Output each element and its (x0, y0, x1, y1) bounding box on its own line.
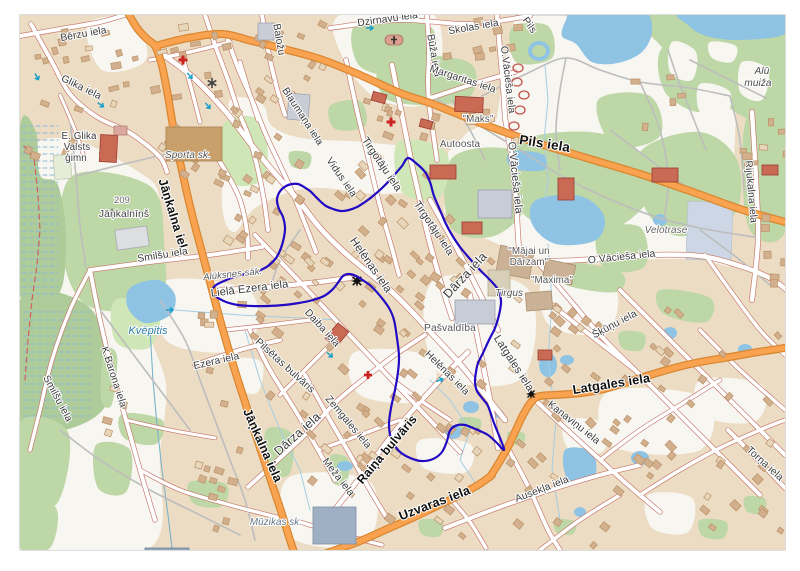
svg-text:Velotrase: Velotrase (645, 225, 688, 236)
svg-text:"Maks": "Maks" (463, 114, 494, 125)
svg-text:E. Glika: E. Glika (61, 131, 97, 142)
svg-text:Mūzikas sk.: Mūzikas sk. (250, 517, 302, 528)
svg-text:Pašvaldība: Pašvaldība (424, 323, 476, 334)
svg-text:Dārzam": Dārzam" (510, 257, 549, 268)
svg-text:Jāņkalnīņš: Jāņkalnīņš (99, 209, 149, 220)
svg-text:209: 209 (114, 194, 130, 205)
svg-text:"Maxima": "Maxima" (531, 275, 573, 286)
svg-text:Alū: Alū (754, 66, 770, 77)
svg-text:Tirgus: Tirgus (495, 288, 523, 299)
svg-text:Kvēpītis: Kvēpītis (128, 325, 168, 337)
svg-text:Valsts: Valsts (64, 142, 91, 153)
svg-text:Sporta sk.: Sporta sk. (165, 150, 211, 161)
svg-text:"Mājai un: "Mājai un (508, 246, 549, 257)
svg-text:muiža: muiža (744, 78, 772, 89)
svg-text:ģimn: ģimn (65, 153, 87, 164)
svg-text:Autoosta: Autoosta (440, 139, 481, 150)
